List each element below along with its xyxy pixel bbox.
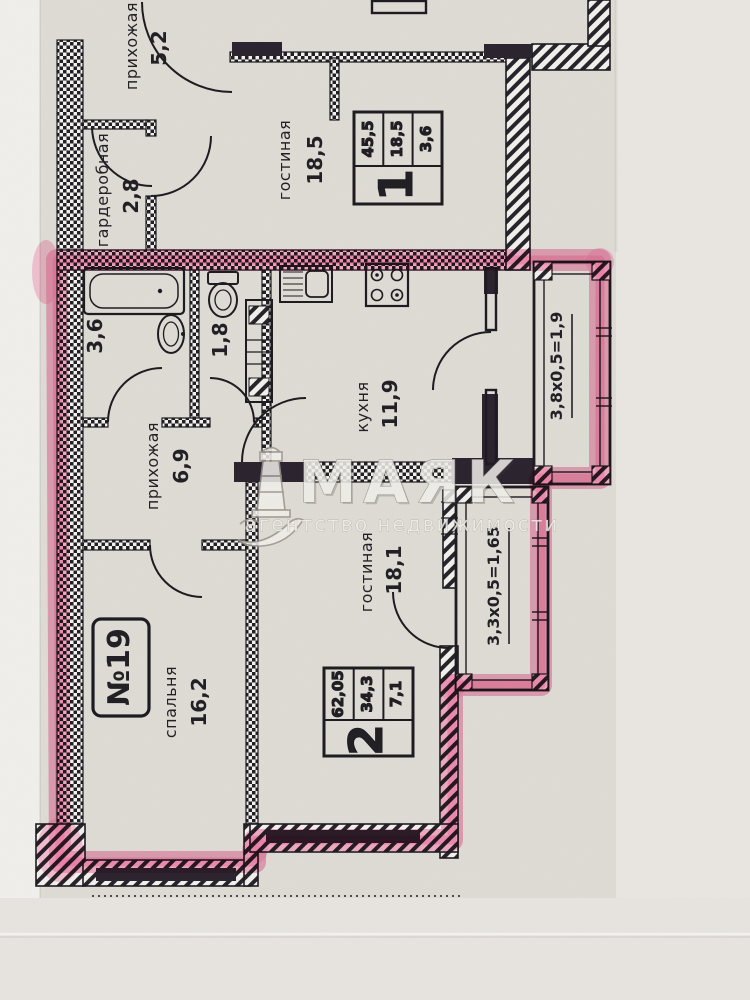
floorplan-photo: 45,5 18,5 3,6 1 62,05 34,3 7,1 2 №19 при… [0, 0, 750, 1000]
floor-plan-drawing: 45,5 18,5 3,6 1 62,05 34,3 7,1 2 №19 при… [0, 0, 750, 1000]
paper-grain-overlay [0, 0, 750, 1000]
